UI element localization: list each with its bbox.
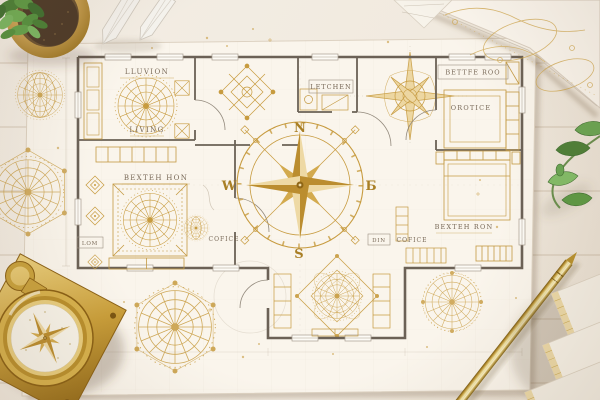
corner-sheet	[394, 0, 452, 28]
compass-north-letter: N	[294, 121, 306, 136]
label-living-title: LLUVION	[125, 68, 169, 76]
label-kitchen: LETCHEN	[310, 83, 351, 91]
leaf-sprig	[537, 121, 600, 222]
compass-east-letter: Б	[365, 179, 376, 194]
label-office-right: COFICE	[396, 237, 427, 244]
label-office-left: COFICE	[208, 236, 239, 243]
label-dining: DIN	[372, 238, 386, 244]
crystal	[134, 0, 175, 44]
potted-plant	[0, 0, 96, 66]
compass-west-letter: W	[221, 179, 237, 194]
label-living: LIVING	[129, 126, 164, 134]
flatlay-illustration: N W Б S LLUVION LIVING LETCHEN BETTFE RO…	[0, 0, 600, 400]
label-left-bedroom: BEXTEH HON	[124, 174, 188, 182]
compass-south-letter: S	[294, 247, 303, 262]
label-suite-office: OROTICE	[451, 104, 492, 112]
label-closet: LOM	[82, 241, 98, 247]
label-suite-title: BETTFE ROO	[445, 69, 500, 77]
label-right-bedroom: BEXTEH RON	[435, 223, 494, 231]
scene: N W Б S LLUVION LIVING LETCHEN BETTFE RO…	[0, 0, 600, 400]
